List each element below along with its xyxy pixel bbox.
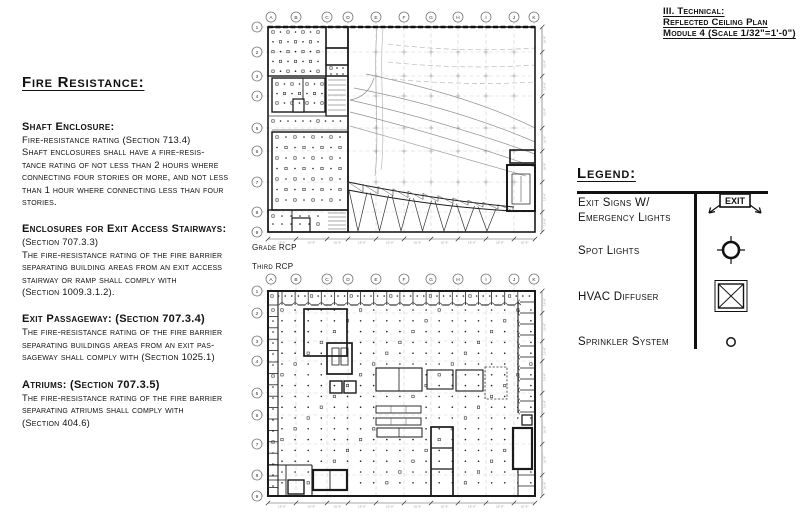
section-heading: Shaft Enclosure: bbox=[22, 121, 248, 133]
svg-text:5: 5 bbox=[256, 126, 259, 132]
svg-text:16'-8": 16'-8" bbox=[278, 505, 286, 509]
title-block: III. Technical: Reflected Ceiling Plan M… bbox=[663, 7, 796, 39]
section-body: Fire-resistance rating (Section 713.4) S… bbox=[22, 134, 248, 208]
svg-text:G: G bbox=[429, 277, 433, 283]
svg-text:1: 1 bbox=[256, 289, 259, 295]
svg-text:16'-8": 16'-8" bbox=[358, 241, 366, 245]
legend-label-hvac-diffuser: HVAC Diffuser bbox=[578, 290, 659, 305]
third-rcp-plan: Third RCPABCDEFGHIJK12345678916'-8"16'-8… bbox=[246, 258, 568, 518]
svg-text:2: 2 bbox=[256, 50, 259, 56]
svg-text:I: I bbox=[485, 277, 486, 283]
svg-text:16'-8": 16'-8" bbox=[521, 241, 529, 245]
svg-text:16'-8": 16'-8" bbox=[496, 505, 504, 509]
svg-text:5: 5 bbox=[256, 391, 259, 397]
svg-text:1: 1 bbox=[256, 25, 259, 31]
svg-text:7: 7 bbox=[256, 180, 259, 186]
svg-text:I: I bbox=[485, 15, 486, 21]
svg-text:F: F bbox=[403, 15, 406, 21]
legend-label-sprinkler-system: Sprinkler System bbox=[578, 335, 669, 350]
svg-text:16'-8": 16'-8" bbox=[543, 426, 547, 434]
svg-text:D: D bbox=[346, 15, 350, 21]
svg-text:16'-8": 16'-8" bbox=[543, 218, 547, 226]
sprinkler-icon bbox=[724, 335, 738, 349]
legend-panel: Legend: Exit Signs W/ Emergency Lights S… bbox=[577, 165, 793, 365]
svg-text:16'-8": 16'-8" bbox=[334, 241, 342, 245]
spot-light-icon bbox=[714, 233, 748, 267]
grade-rcp-plan: ABCDEFGHIJK12345678916'-8"16'-8"16'-8"16… bbox=[246, 4, 568, 256]
svg-text:16'-8": 16'-8" bbox=[496, 241, 504, 245]
section-atriums: Atriums: (Section 707.3.5) The fire-resi… bbox=[22, 379, 248, 429]
svg-text:16'-8": 16'-8" bbox=[543, 36, 547, 44]
svg-text:3: 3 bbox=[256, 339, 259, 345]
section-heading: Exit Passageway: (Section 707.3.4) bbox=[22, 313, 248, 325]
legend-heading: Legend: bbox=[577, 165, 793, 182]
svg-text:16'-8": 16'-8" bbox=[543, 482, 547, 490]
section-body: (Section 707.3.3) The fire-resistance ra… bbox=[22, 236, 248, 298]
svg-text:B: B bbox=[294, 15, 297, 21]
section-body: The fire-resistance rating of the fire b… bbox=[22, 392, 248, 429]
svg-text:16'-8": 16'-8" bbox=[441, 505, 449, 509]
section-heading: Atriums: (Section 707.3.5) bbox=[22, 379, 248, 391]
svg-text:C: C bbox=[325, 277, 329, 283]
legend-label-spot-lights: Spot Lights bbox=[578, 244, 639, 259]
svg-text:16'-8": 16'-8" bbox=[308, 505, 316, 509]
grid-lines bbox=[268, 27, 535, 232]
svg-text:16'-8": 16'-8" bbox=[543, 82, 547, 90]
svg-text:7: 7 bbox=[256, 442, 259, 448]
svg-text:16'-8": 16'-8" bbox=[386, 505, 394, 509]
plan-walls bbox=[268, 291, 535, 496]
fire-resistance-heading: Fire Resistance: bbox=[22, 74, 248, 91]
svg-text:8: 8 bbox=[256, 210, 259, 216]
section-exit-access-stairways: Enclosures for Exit Access Stairways: (S… bbox=[22, 223, 248, 298]
svg-text:16'-8": 16'-8" bbox=[543, 136, 547, 144]
svg-text:16'-8": 16'-8" bbox=[386, 241, 394, 245]
svg-text:D: D bbox=[346, 277, 350, 283]
svg-text:9: 9 bbox=[256, 494, 259, 500]
svg-text:E: E bbox=[374, 15, 377, 21]
svg-text:9: 9 bbox=[256, 230, 259, 236]
section-heading: Enclosures for Exit Access Stairways: bbox=[22, 223, 248, 235]
svg-text:16'-8": 16'-8" bbox=[543, 163, 547, 171]
svg-text:16'-8": 16'-8" bbox=[543, 400, 547, 408]
curtainwall-curves bbox=[350, 28, 535, 184]
exit-icon-text: EXIT bbox=[725, 196, 746, 206]
svg-text:B: B bbox=[294, 277, 297, 283]
third-rcp-label: Third RCP bbox=[252, 262, 293, 271]
svg-text:16'-8": 16'-8" bbox=[521, 505, 529, 509]
svg-text:H: H bbox=[456, 277, 460, 283]
section-exit-passageway: Exit Passageway: (Section 707.3.4) The f… bbox=[22, 313, 248, 363]
title-line-2: Reflected Ceiling Plan bbox=[663, 18, 768, 29]
svg-text:F: F bbox=[403, 277, 406, 283]
svg-text:6: 6 bbox=[256, 413, 259, 419]
svg-text:16'-8": 16'-8" bbox=[543, 298, 547, 306]
svg-text:16'-8": 16'-8" bbox=[468, 241, 476, 245]
svg-text:C: C bbox=[325, 15, 329, 21]
legend-divider-vertical bbox=[694, 191, 697, 349]
svg-text:8: 8 bbox=[256, 473, 259, 479]
grid-bubbles: ABCDEFGHIJK123456789 bbox=[252, 274, 539, 501]
svg-text:16'-8": 16'-8" bbox=[543, 347, 547, 355]
svg-text:16'-8": 16'-8" bbox=[358, 505, 366, 509]
exit-sign-icon: EXIT bbox=[703, 191, 767, 223]
svg-text:16'-8": 16'-8" bbox=[468, 505, 476, 509]
svg-text:16'-8": 16'-8" bbox=[543, 108, 547, 116]
grid-bubbles: ABCDEFGHIJK123456789 bbox=[252, 12, 539, 237]
fire-resistance-panel: Fire Resistance: Shaft Enclosure: Fire-r… bbox=[22, 74, 248, 444]
legend-label-exit-signs: Exit Signs W/ Emergency Lights bbox=[578, 196, 671, 225]
svg-text:6: 6 bbox=[256, 149, 259, 155]
svg-text:16'-8": 16'-8" bbox=[414, 241, 422, 245]
svg-text:G: G bbox=[429, 15, 433, 21]
svg-text:4: 4 bbox=[256, 94, 259, 100]
svg-text:E: E bbox=[374, 277, 377, 283]
section-shaft-enclosure: Shaft Enclosure: Fire-resistance rating … bbox=[22, 121, 248, 208]
grade-rcp-label: Grade RCP bbox=[252, 243, 297, 252]
hvac-diffuser-icon bbox=[713, 279, 749, 313]
svg-text:16'-8": 16'-8" bbox=[441, 241, 449, 245]
title-line-3: Module 4 (Scale 1/32"=1'-0") bbox=[663, 29, 796, 40]
svg-text:16'-8": 16'-8" bbox=[543, 193, 547, 201]
svg-text:16'-8": 16'-8" bbox=[308, 241, 316, 245]
svg-text:4: 4 bbox=[256, 359, 259, 365]
svg-text:H: H bbox=[456, 15, 460, 21]
svg-text:16'-8": 16'-8" bbox=[543, 60, 547, 68]
svg-text:2: 2 bbox=[256, 311, 259, 317]
svg-text:16'-8": 16'-8" bbox=[414, 505, 422, 509]
plan-walls bbox=[268, 27, 535, 232]
section-body: The fire-resistance rating of the fire b… bbox=[22, 326, 248, 363]
svg-text:16'-8": 16'-8" bbox=[543, 373, 547, 381]
svg-text:16'-8": 16'-8" bbox=[334, 505, 342, 509]
svg-text:3: 3 bbox=[256, 74, 259, 80]
svg-text:16'-8": 16'-8" bbox=[543, 323, 547, 331]
svg-text:16'-8": 16'-8" bbox=[543, 456, 547, 464]
